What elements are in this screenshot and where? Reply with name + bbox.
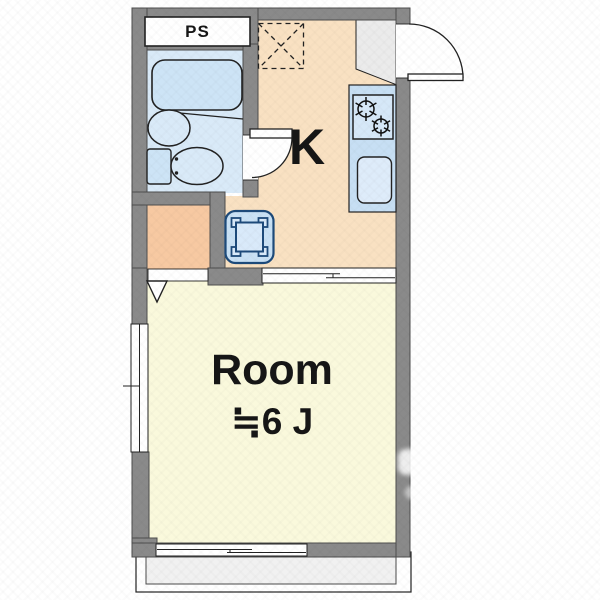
floor-plan-drawing [0,0,600,600]
floor-plan: PS K Room ≒6 J [0,0,600,600]
closet-floor [147,203,210,270]
watermark [398,449,598,475]
window-bottom [156,544,307,556]
kitchen-sink [358,157,392,203]
gas-stove [353,95,393,139]
toilet [147,148,223,185]
wash-basin [148,110,190,146]
pipe-space-label: PS [145,17,250,46]
watermark [405,486,565,499]
window-left [123,324,148,452]
room-label: Room ≒6 J [147,346,397,444]
entry-door [396,24,463,81]
room-name: Room [211,346,333,395]
kitchen-label: K [283,120,331,174]
balcony [136,552,411,592]
room-size: ≒6 J [231,401,313,444]
sliding-door [262,268,396,283]
washing-machine-pan [226,211,274,263]
bathtub [152,60,242,110]
